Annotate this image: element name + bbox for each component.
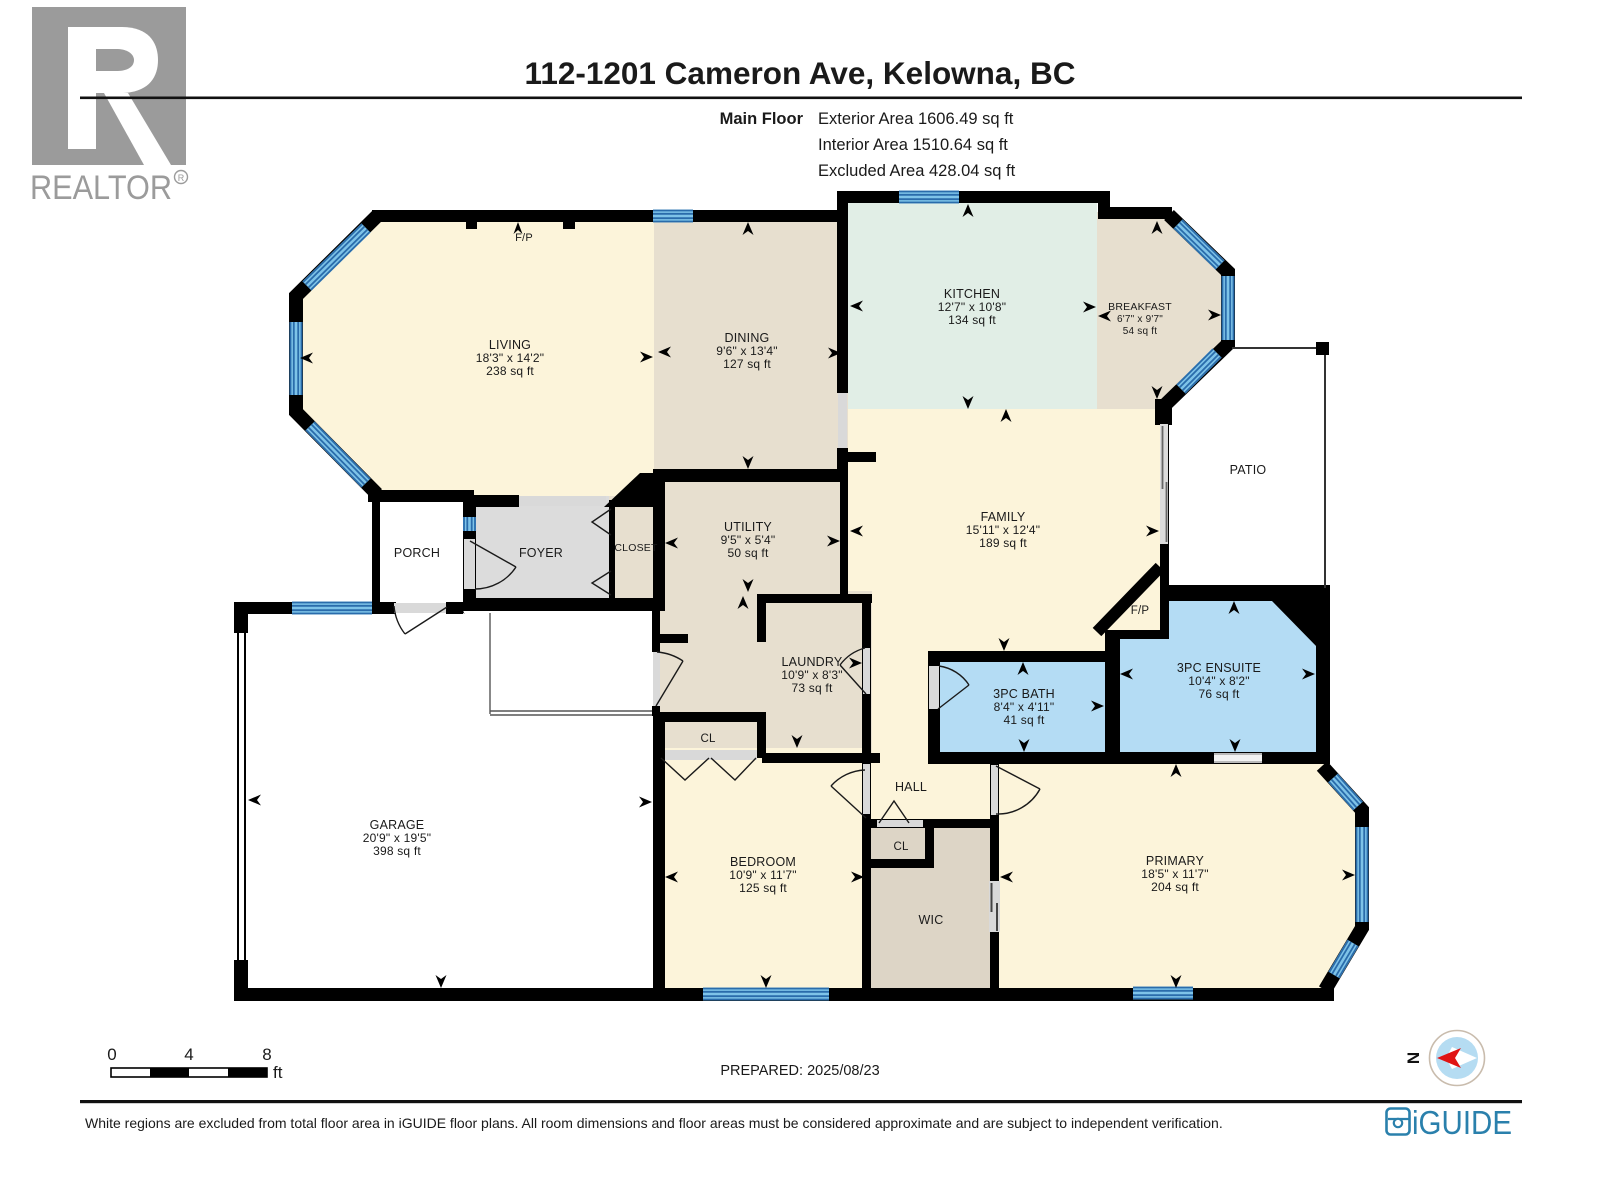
svg-text:20'9" x 19'5": 20'9" x 19'5" (363, 831, 431, 845)
svg-text:Interior Area 1510.64 sq ft: Interior Area 1510.64 sq ft (818, 136, 1008, 154)
svg-text:41 sq ft: 41 sq ft (1004, 713, 1045, 727)
svg-text:CLOSET: CLOSET (614, 542, 658, 554)
svg-text:UTILITY: UTILITY (724, 520, 772, 534)
svg-text:FOYER: FOYER (519, 546, 563, 560)
svg-text:LAUNDRY: LAUNDRY (782, 655, 843, 669)
svg-text:18'3" x 14'2": 18'3" x 14'2" (476, 351, 544, 365)
svg-text:127 sq ft: 127 sq ft (723, 357, 771, 371)
svg-text:10'9" x 8'3": 10'9" x 8'3" (781, 668, 843, 682)
svg-text:LIVING: LIVING (489, 338, 531, 352)
svg-text:PORCH: PORCH (394, 546, 440, 560)
svg-text:HALL: HALL (895, 780, 927, 794)
svg-text:73 sq ft: 73 sq ft (792, 681, 833, 695)
svg-text:8: 8 (262, 1045, 271, 1064)
svg-text:112-1201 Cameron Ave, Kelowna,: 112-1201 Cameron Ave, Kelowna, BC (525, 55, 1076, 91)
svg-text:N: N (1404, 1052, 1423, 1064)
svg-text:GARAGE: GARAGE (370, 818, 425, 832)
svg-text:3PC ENSUITE: 3PC ENSUITE (1177, 661, 1261, 675)
svg-text:CL: CL (893, 841, 909, 853)
svg-text:189 sq ft: 189 sq ft (979, 536, 1027, 550)
svg-text:PREPARED: 2025/08/23: PREPARED: 2025/08/23 (720, 1063, 879, 1079)
svg-text:0: 0 (107, 1045, 116, 1064)
svg-text:Main Floor: Main Floor (720, 110, 804, 128)
svg-text:3PC BATH: 3PC BATH (993, 687, 1055, 701)
svg-text:PATIO: PATIO (1230, 463, 1267, 477)
svg-text:F/P: F/P (515, 232, 533, 244)
svg-text:125 sq ft: 125 sq ft (739, 881, 787, 895)
svg-text:18'5" x 11'7": 18'5" x 11'7" (1141, 867, 1209, 881)
svg-text:134 sq ft: 134 sq ft (948, 313, 996, 327)
svg-text:WIC: WIC (919, 913, 944, 927)
svg-text:CL: CL (700, 733, 716, 745)
svg-text:6'7" x 9'7": 6'7" x 9'7" (1117, 314, 1163, 325)
svg-text:KITCHEN: KITCHEN (944, 287, 1000, 301)
svg-text:Exterior Area 1606.49 sq ft: Exterior Area 1606.49 sq ft (818, 110, 1014, 128)
svg-text:ft: ft (273, 1063, 283, 1082)
svg-text:398 sq ft: 398 sq ft (373, 844, 421, 858)
svg-text:10'9" x 11'7": 10'9" x 11'7" (729, 868, 797, 882)
svg-text:F/P: F/P (1131, 605, 1150, 617)
svg-text:FAMILY: FAMILY (981, 510, 1026, 524)
svg-text:15'11" x 12'4": 15'11" x 12'4" (966, 523, 1040, 537)
svg-text:PRIMARY: PRIMARY (1146, 854, 1205, 868)
svg-text:White regions are excluded fro: White regions are excluded from total fl… (85, 1115, 1223, 1131)
svg-text:50 sq ft: 50 sq ft (728, 546, 769, 560)
svg-text:204 sq ft: 204 sq ft (1151, 880, 1199, 894)
svg-text:4: 4 (184, 1045, 193, 1064)
svg-text:9'6" x 13'4": 9'6" x 13'4" (716, 344, 778, 358)
svg-text:R: R (178, 173, 185, 183)
svg-text:12'7" x 10'8": 12'7" x 10'8" (938, 300, 1006, 314)
svg-text:REALTOR: REALTOR (30, 169, 172, 207)
svg-text:10'4" x 8'2": 10'4" x 8'2" (1188, 674, 1250, 688)
svg-text:BEDROOM: BEDROOM (730, 855, 796, 869)
svg-text:9'5" x 5'4": 9'5" x 5'4" (721, 533, 776, 547)
svg-text:238 sq ft: 238 sq ft (486, 364, 534, 378)
svg-text:iGUIDE: iGUIDE (1412, 1104, 1512, 1141)
svg-text:Excluded Area 428.04 sq ft: Excluded Area 428.04 sq ft (818, 162, 1016, 180)
svg-text:54 sq ft: 54 sq ft (1123, 326, 1157, 337)
svg-text:BREAKFAST: BREAKFAST (1108, 301, 1172, 313)
svg-text:8'4" x 4'11": 8'4" x 4'11" (994, 700, 1055, 714)
svg-text:76 sq ft: 76 sq ft (1199, 687, 1240, 701)
svg-text:DINING: DINING (725, 331, 770, 345)
